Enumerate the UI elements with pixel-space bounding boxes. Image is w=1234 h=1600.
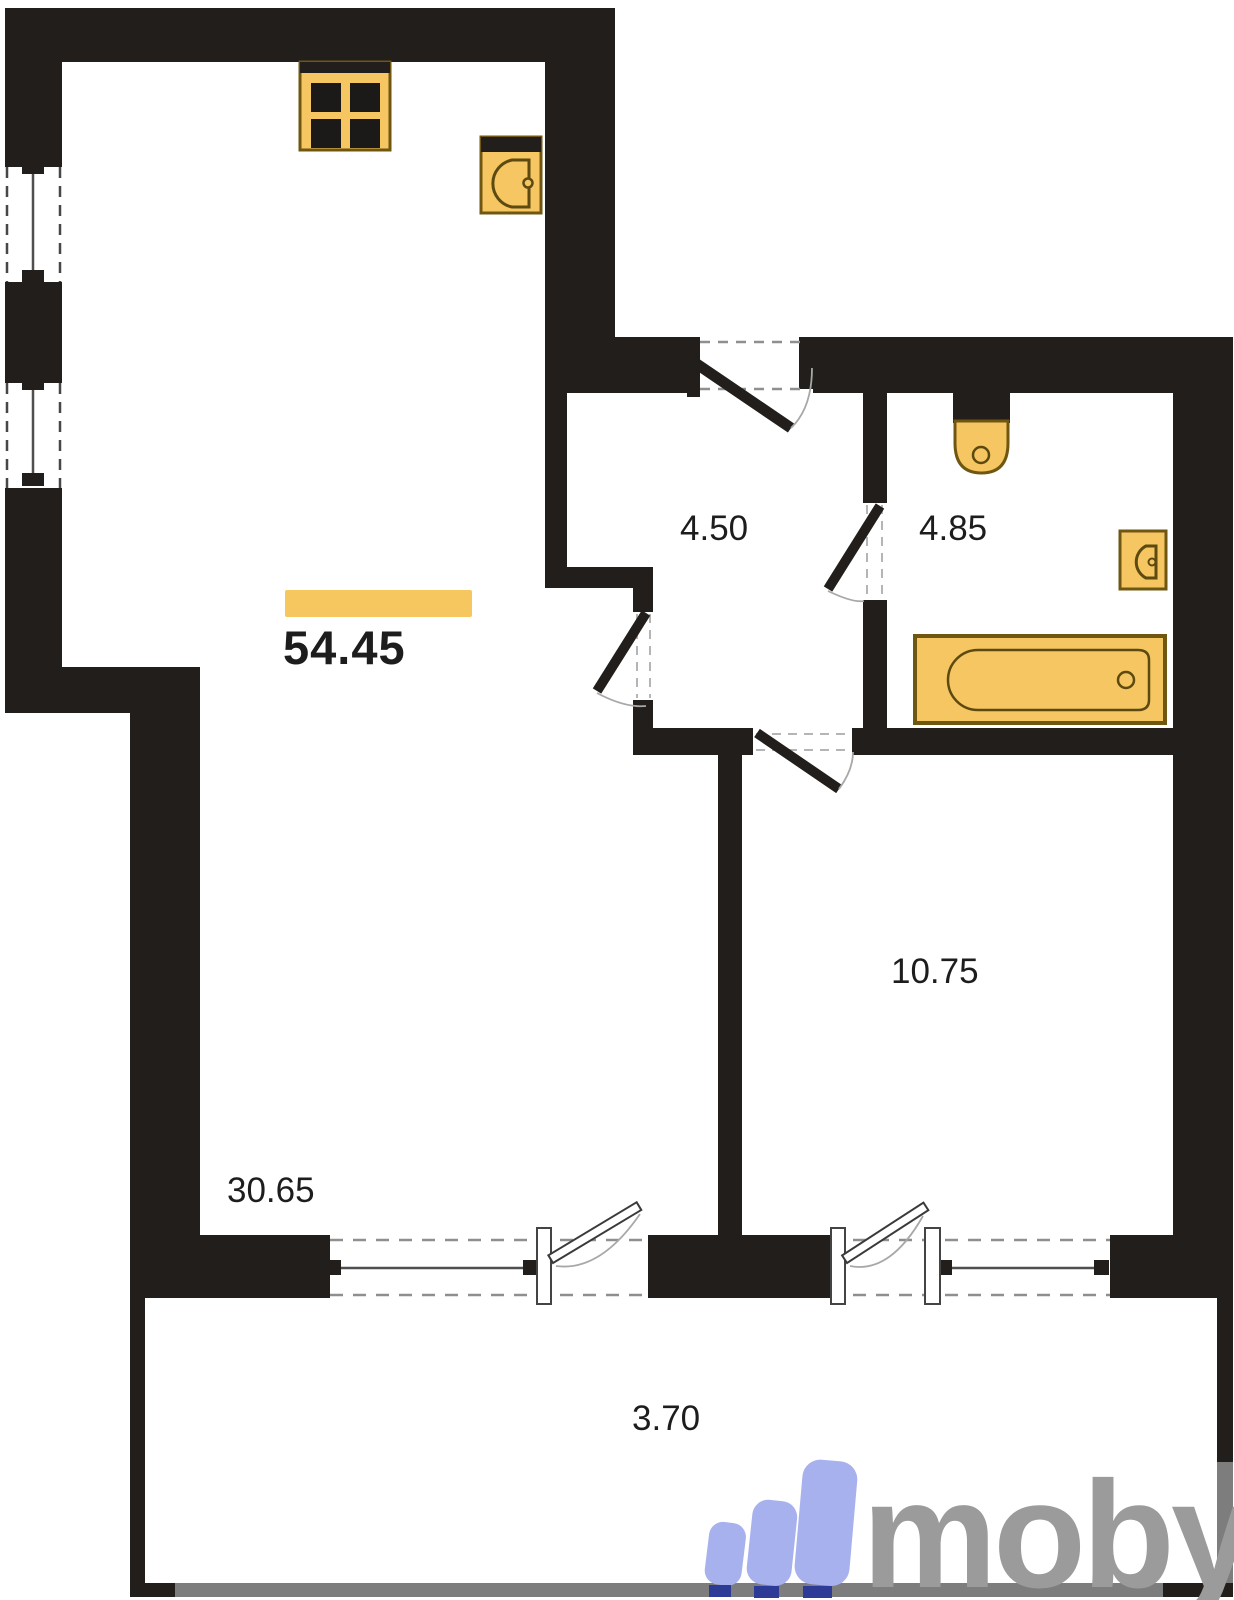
door-frame-post: [537, 1228, 551, 1304]
door-leaf: [757, 733, 839, 789]
wall-entry-band-right: [813, 337, 1233, 393]
wall-hall-door-bottom: [633, 700, 653, 730]
living-kitchen-area-label: 30.65: [227, 1172, 315, 1211]
total-area-accent-bar: [285, 590, 472, 617]
door-hall-bedroom: [756, 733, 853, 789]
balcony-door-leaf: [842, 1203, 928, 1263]
balcony-door-bedroom: [830, 1203, 1110, 1304]
wall-bottom-mid: [648, 1235, 830, 1298]
floor-plan-drawing: [0, 0, 1234, 1600]
door-arc: [828, 591, 864, 601]
wall-hall-left-thin: [545, 393, 567, 567]
door-frame-post: [925, 1228, 940, 1304]
entrance-door: [688, 342, 812, 428]
wall-kitchen-right: [545, 62, 615, 337]
window-left-lower: [7, 377, 60, 488]
wall-left-upper: [5, 8, 62, 167]
bathroom-sink-icon: [1120, 531, 1166, 589]
wall-bathroom-bottom: [852, 728, 1173, 755]
bathtub-icon: [915, 636, 1165, 723]
balcony-door-living: [326, 1202, 648, 1304]
door-arc: [850, 1216, 923, 1267]
balcony-corner-left: [130, 1583, 175, 1597]
wall-left-mid: [5, 282, 62, 383]
door-frame-post: [831, 1228, 845, 1304]
wall-hall-step: [545, 567, 653, 588]
entrance-door-leaf: [688, 358, 791, 428]
bathroom-area-label: 4.85: [919, 510, 987, 549]
moby-logo-text: moby: [862, 1448, 1234, 1600]
door-arc: [839, 752, 853, 789]
toilet-icon: [953, 393, 1010, 473]
wall-right: [1173, 337, 1233, 1298]
window-left-upper: [7, 161, 60, 283]
wall-bath-divider-lower: [863, 600, 887, 755]
hallway-area-label: 4.50: [680, 510, 748, 549]
door-leaf: [597, 613, 646, 691]
wall-entry-band-left: [545, 337, 687, 393]
bedroom-area-label: 10.75: [891, 953, 979, 992]
wall-living-bedroom-divider: [718, 728, 742, 1235]
balcony-wall-left: [130, 1297, 145, 1597]
kitchen-sink-icon: [481, 137, 541, 213]
balcony-area-label: 3.70: [632, 1400, 700, 1439]
wall-hall-door-top: [633, 588, 653, 612]
door-hall-bathroom: [828, 505, 882, 601]
door-leaf: [828, 506, 880, 589]
moby-logo-icon: [703, 1458, 859, 1598]
wall-living-bottom: [130, 1235, 330, 1298]
door-hall-living: [597, 613, 650, 706]
balcony-door-leaf: [548, 1202, 641, 1263]
floor-plan: 54.45 4.50 4.85 10.75 30.65 3.70 moby: [0, 0, 1234, 1600]
wall-bath-divider-upper: [863, 393, 887, 503]
stove-icon: [300, 62, 390, 150]
wall-living-left: [130, 667, 200, 1297]
total-area-label: 54.45: [283, 622, 406, 674]
balcony-wall-right-upper: [1217, 1298, 1233, 1462]
wall-top: [5, 8, 615, 62]
